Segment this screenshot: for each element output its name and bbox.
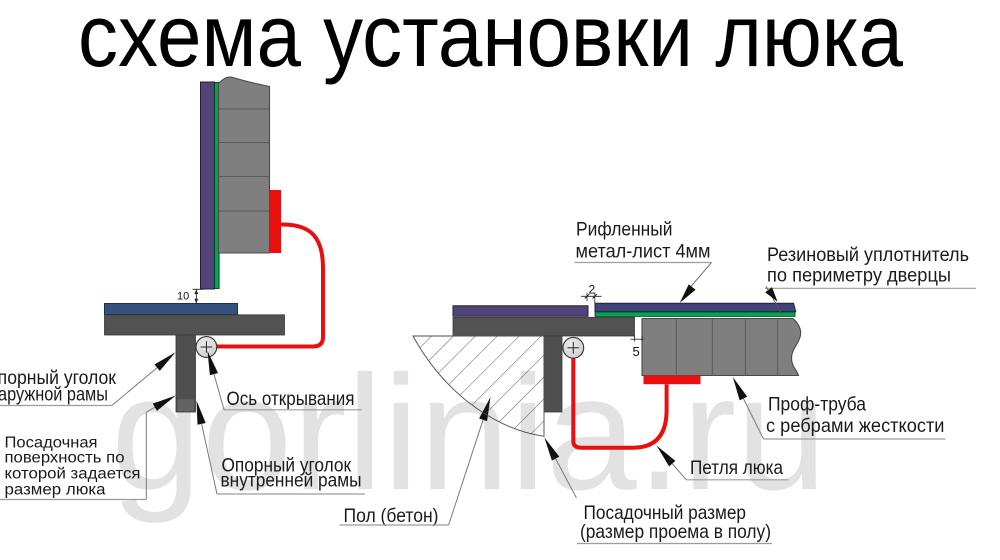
svg-text:Резиновый уплотнитель: Резиновый уплотнитель — [767, 244, 969, 266]
svg-text:метал-лист 4мм: метал-лист 4мм — [576, 240, 711, 262]
svg-text:внутренней рамы: внутренней рамы — [221, 470, 362, 492]
svg-text:Петля люка: Петля люка — [690, 457, 783, 479]
svg-text:5: 5 — [633, 344, 640, 359]
svg-text:Рифленный: Рифленный — [576, 218, 673, 240]
svg-text:Ось открывания: Ось открывания — [227, 388, 355, 410]
svg-text:поверхность по: поверхность по — [5, 450, 125, 467]
svg-text:по периметру дверцы: по периметру дверцы — [767, 264, 951, 286]
svg-text:схема установки люка: схема установки люка — [78, 0, 903, 85]
svg-text:которой задается: которой задается — [5, 466, 141, 483]
svg-text:(размер проема в полу): (размер проема в полу) — [580, 521, 771, 543]
svg-text:с ребрами жесткости: с ребрами жесткости — [766, 415, 945, 437]
svg-text:размер люка: размер люка — [5, 482, 106, 499]
svg-text:Пол (бетон): Пол (бетон) — [344, 505, 439, 527]
svg-text:Проф-труба: Проф-труба — [768, 394, 866, 416]
svg-text:наружной рамы: наружной рамы — [0, 383, 108, 405]
svg-text:10: 10 — [177, 291, 189, 303]
